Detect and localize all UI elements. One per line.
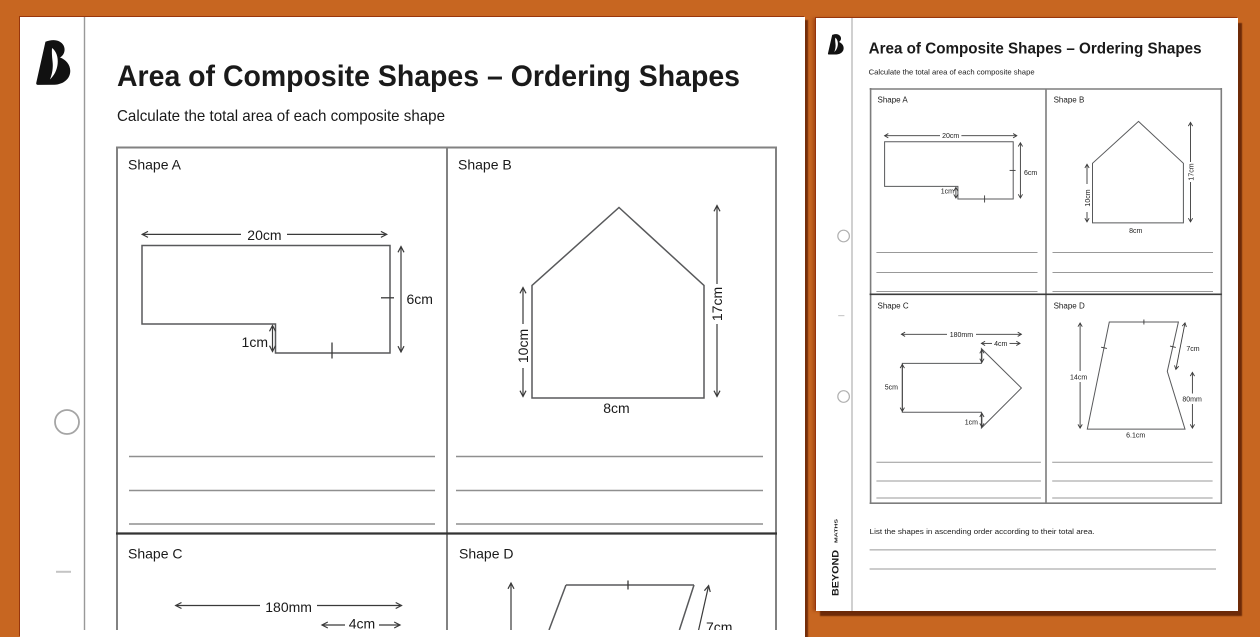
- svg-text:6.1cm: 6.1cm: [1126, 433, 1145, 440]
- svg-text:BEYOND: BEYOND: [831, 549, 841, 596]
- svg-text:List the shapes in ascending o: List the shapes in ascending order accor…: [870, 527, 1095, 536]
- svg-text:Shape A: Shape A: [878, 96, 909, 105]
- svg-text:Calculate the total area of ea: Calculate the total area of each composi…: [869, 68, 1035, 77]
- svg-text:10cm: 10cm: [1085, 189, 1092, 206]
- svg-text:Area of Composite Shapes – Ord: Area of Composite Shapes – Ordering Shap…: [869, 41, 1202, 58]
- svg-text:MATHS: MATHS: [834, 519, 839, 543]
- svg-text:7cm: 7cm: [1186, 346, 1199, 353]
- svg-text:180mm: 180mm: [950, 332, 974, 339]
- svg-text:17cm: 17cm: [709, 287, 725, 321]
- svg-text:10cm: 10cm: [515, 329, 531, 363]
- svg-text:Area of Composite Shapes – Ord: Area of Composite Shapes – Ordering Shap…: [117, 60, 740, 93]
- svg-text:Shape D: Shape D: [1054, 302, 1085, 311]
- svg-text:8cm: 8cm: [603, 400, 629, 416]
- svg-text:20cm: 20cm: [247, 227, 281, 243]
- svg-text:80mm: 80mm: [1182, 396, 1202, 403]
- svg-text:1cm: 1cm: [242, 334, 268, 350]
- svg-text:Shape C: Shape C: [878, 302, 909, 311]
- svg-text:180mm: 180mm: [265, 599, 312, 615]
- svg-text:Shape D: Shape D: [459, 546, 513, 562]
- svg-text:Shape B: Shape B: [458, 157, 512, 173]
- svg-text:Shape B: Shape B: [1054, 96, 1085, 105]
- svg-text:5cm: 5cm: [885, 385, 898, 392]
- svg-text:4cm: 4cm: [994, 341, 1007, 348]
- svg-text:17cm: 17cm: [1188, 163, 1195, 180]
- svg-text:1cm: 1cm: [941, 189, 954, 196]
- svg-text:1cm: 1cm: [965, 420, 978, 427]
- svg-text:6cm: 6cm: [407, 291, 433, 307]
- svg-text:4cm: 4cm: [349, 616, 375, 631]
- svg-text:Shape C: Shape C: [128, 546, 182, 562]
- svg-text:8cm: 8cm: [1129, 228, 1142, 235]
- svg-text:6cm: 6cm: [1024, 170, 1037, 177]
- svg-text:Shape A: Shape A: [128, 157, 182, 173]
- svg-text:Calculate the total area of ea: Calculate the total area of each composi…: [117, 108, 445, 125]
- svg-text:14cm: 14cm: [1070, 374, 1087, 381]
- svg-text:7cm: 7cm: [706, 619, 732, 630]
- svg-text:20cm: 20cm: [942, 133, 959, 140]
